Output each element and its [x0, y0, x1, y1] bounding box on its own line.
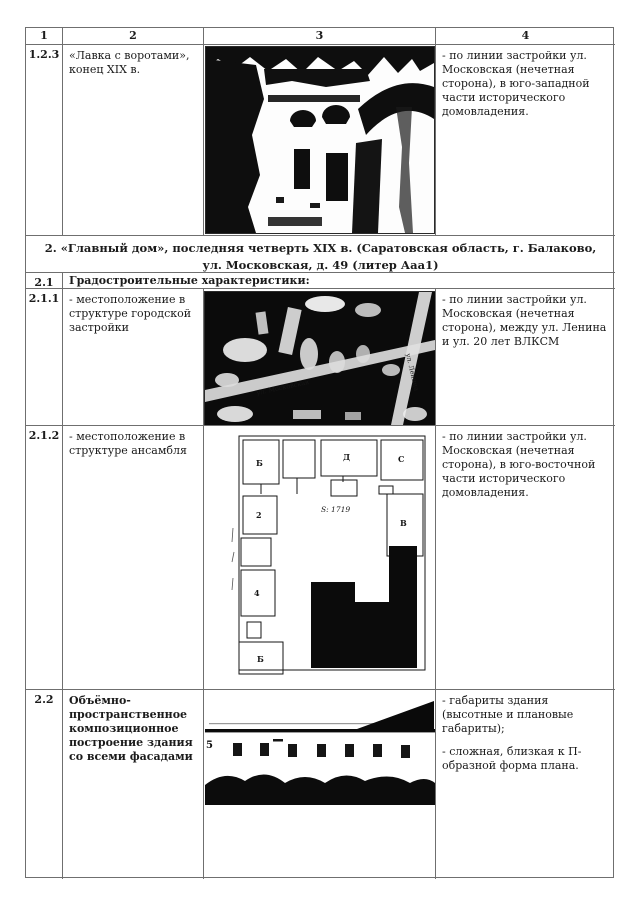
row-211-label: - местоположение в структуре городской з…: [63, 289, 204, 426]
plan-room-label-4: 4: [254, 588, 260, 598]
row-212-number: 2.1.2: [26, 426, 63, 690]
column-header-4: 4: [436, 28, 615, 45]
row-211-image-cell: ул. Московская ул. Ленина: [204, 289, 436, 426]
row-22-number: 2.2: [26, 690, 63, 879]
row-22-label: Объёмно-пространственное композиционное …: [63, 690, 204, 879]
row-212-description: - по линии застройки ул. Московская (неч…: [436, 426, 615, 690]
aerial-map-city-block: ул. Московская ул. Ленина: [204, 291, 436, 426]
row-22-image-cell: 5: [204, 690, 436, 879]
row-123-description: - по линии застройки ул. Московская (неч…: [436, 45, 615, 236]
row-22-description: - габариты здания (высотные и плановые г…: [436, 690, 615, 879]
photo-main-house-facade: 5: [205, 693, 435, 807]
row-123-number: 1.2.3: [26, 45, 63, 236]
plan-room-label-2: 2: [256, 510, 262, 520]
plan-room-label-b2: Б: [257, 654, 264, 664]
column-header-2: 2: [63, 28, 204, 45]
column-header-3: 3: [204, 28, 436, 45]
row-123-label: «Лавка с воротами», конец XIX в.: [63, 45, 204, 236]
facade-photo-mark: 5: [206, 740, 213, 751]
row-211-description: - по линии застройки ул. Московская (неч…: [436, 289, 615, 426]
photo-shop-gates: [205, 46, 435, 234]
row-212-label: - местоположение в структуре ансамбля: [63, 426, 204, 690]
site-plan-drawing: Б Д С 2 4 В Б S: 1719: [231, 432, 431, 678]
row-123-image-cell: [204, 45, 436, 236]
column-header-1: 1: [26, 28, 63, 45]
plan-room-label-v: В: [400, 518, 407, 528]
row-21-label: Градостроительные характеристики:: [63, 273, 615, 289]
row-211-number: 2.1.1: [26, 289, 63, 426]
row-21-number: 2.1: [26, 273, 63, 289]
row-22-description-line-2: - сложная, близкая к П-образной форма пл…: [442, 745, 609, 773]
plan-area-label: S: 1719: [321, 505, 350, 514]
section-2-title: 2. «Главный дом», последняя четверть XIX…: [26, 236, 615, 273]
row-22-description-line-1: - габариты здания (высотные и плановые г…: [442, 694, 609, 736]
plan-room-label-d: Д: [343, 452, 350, 462]
plan-room-label-c: С: [398, 454, 404, 464]
row-212-image-cell: Б Д С 2 4 В Б S: 1719: [204, 426, 436, 690]
document-table: 1 2 3 4 1.2.3 «Лавка с воротами», конец …: [25, 27, 614, 878]
plan-room-label-b1: Б: [256, 458, 263, 468]
